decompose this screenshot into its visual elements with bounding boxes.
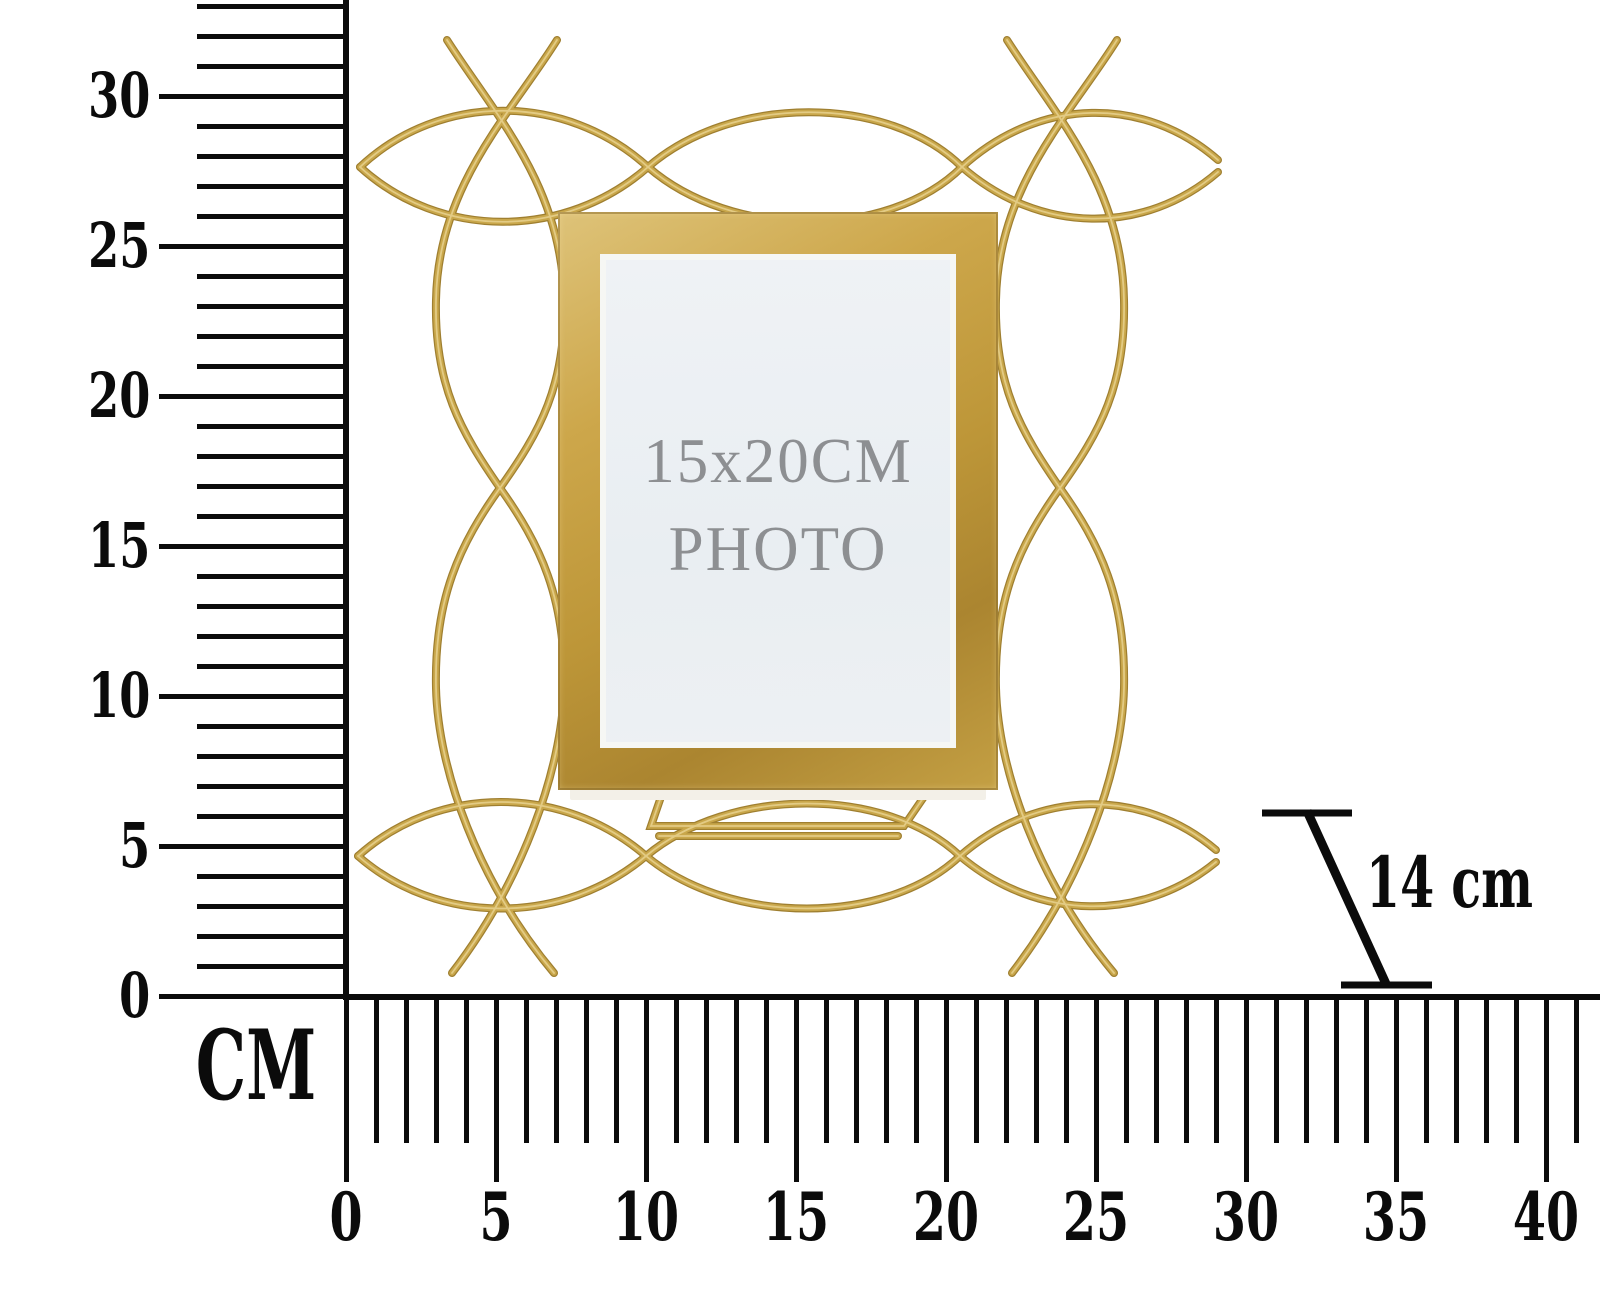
h-ruler-tick xyxy=(1124,995,1129,1143)
h-ruler-label: 25 xyxy=(1063,1184,1129,1250)
v-ruler-tick xyxy=(197,484,349,489)
v-ruler-tick xyxy=(197,424,349,429)
h-ruler-tick xyxy=(524,995,529,1143)
h-ruler-tick xyxy=(1484,995,1489,1143)
h-ruler-tick xyxy=(974,995,979,1143)
h-ruler-tick xyxy=(1364,995,1369,1143)
v-ruler-tick xyxy=(197,514,349,519)
placeholder-size-text: 15x20CM xyxy=(606,423,950,499)
ruler-unit-label: CM xyxy=(196,1018,317,1114)
h-ruler-tick xyxy=(854,995,859,1143)
h-ruler-label: 15 xyxy=(763,1184,829,1250)
v-ruler-label: 20 xyxy=(88,365,150,427)
h-ruler-tick xyxy=(494,995,499,1182)
h-ruler-tick xyxy=(1454,995,1459,1143)
v-ruler-tick xyxy=(197,454,349,459)
h-ruler-tick xyxy=(374,995,379,1143)
photo-placeholder: 15x20CM PHOTO xyxy=(600,254,956,748)
h-ruler-tick xyxy=(1064,995,1069,1143)
v-ruler-tick xyxy=(197,124,349,129)
h-ruler-tick xyxy=(584,995,589,1143)
h-ruler-tick xyxy=(884,995,889,1143)
h-ruler-tick xyxy=(1004,995,1009,1143)
h-ruler-tick xyxy=(614,995,619,1143)
h-ruler-tick xyxy=(1034,995,1039,1143)
h-ruler-tick xyxy=(1574,995,1579,1143)
v-ruler-tick xyxy=(197,754,349,759)
h-ruler-tick xyxy=(734,995,739,1143)
h-ruler-label: 5 xyxy=(479,1184,512,1250)
h-ruler-tick xyxy=(344,995,349,1182)
v-ruler-tick xyxy=(197,574,349,579)
v-ruler-tick xyxy=(197,724,349,729)
v-ruler-label: 0 xyxy=(119,965,150,1027)
v-ruler-tick xyxy=(197,184,349,189)
h-ruler-tick xyxy=(1544,995,1549,1182)
v-ruler-tick xyxy=(197,664,349,669)
h-ruler-tick xyxy=(1094,995,1099,1182)
h-ruler-label: 10 xyxy=(613,1184,679,1250)
v-ruler-tick xyxy=(197,814,349,819)
photo-frame: 15x20CM PHOTO xyxy=(558,212,998,790)
h-ruler-label: 35 xyxy=(1363,1184,1429,1250)
v-ruler-tick xyxy=(159,244,349,249)
h-ruler-tick xyxy=(944,995,949,1182)
h-ruler-tick xyxy=(794,995,799,1182)
h-ruler-tick xyxy=(704,995,709,1143)
v-ruler-tick xyxy=(197,634,349,639)
h-ruler-tick xyxy=(1514,995,1519,1143)
h-ruler-tick xyxy=(464,995,469,1143)
v-ruler-tick xyxy=(197,4,349,9)
h-ruler-tick xyxy=(914,995,919,1143)
v-ruler-label: 15 xyxy=(88,515,150,577)
v-ruler-tick xyxy=(159,394,349,399)
depth-measurement-label: 14 cm xyxy=(1366,848,1533,918)
v-ruler-tick xyxy=(197,304,349,309)
h-ruler-tick xyxy=(554,995,559,1143)
h-ruler-tick xyxy=(1304,995,1309,1143)
h-ruler-tick xyxy=(1394,995,1399,1182)
v-ruler-label: 5 xyxy=(119,815,150,877)
v-ruler-tick xyxy=(197,214,349,219)
h-ruler-tick xyxy=(1184,995,1189,1143)
h-ruler-tick xyxy=(674,995,679,1143)
v-ruler-tick xyxy=(197,274,349,279)
v-ruler-tick xyxy=(159,994,349,999)
v-ruler-tick xyxy=(159,94,349,99)
v-ruler-label: 30 xyxy=(88,65,150,127)
vertical-ruler-axis xyxy=(343,0,349,1000)
h-ruler-tick xyxy=(434,995,439,1143)
v-ruler-tick xyxy=(197,874,349,879)
v-ruler-label: 25 xyxy=(88,215,150,277)
v-ruler-tick xyxy=(197,934,349,939)
v-ruler-tick xyxy=(197,154,349,159)
v-ruler-tick xyxy=(197,334,349,339)
h-ruler-tick xyxy=(1214,995,1219,1143)
placeholder-photo-text: PHOTO xyxy=(606,511,950,587)
v-ruler-tick xyxy=(159,844,349,849)
v-ruler-tick xyxy=(197,964,349,969)
h-ruler-label: 40 xyxy=(1513,1184,1579,1250)
product-dimension-diagram: 15x20CM PHOTO 051015202530 0510152025303… xyxy=(0,0,1600,1293)
v-ruler-tick xyxy=(197,904,349,909)
h-ruler-tick xyxy=(1334,995,1339,1143)
h-ruler-tick xyxy=(1424,995,1429,1143)
h-ruler-label: 20 xyxy=(913,1184,979,1250)
h-ruler-tick xyxy=(764,995,769,1143)
v-ruler-tick xyxy=(197,64,349,69)
h-ruler-tick xyxy=(1244,995,1249,1182)
v-ruler-tick xyxy=(197,364,349,369)
h-ruler-tick xyxy=(644,995,649,1182)
h-ruler-tick xyxy=(1154,995,1159,1143)
v-ruler-tick xyxy=(159,544,349,549)
v-ruler-tick xyxy=(197,604,349,609)
h-ruler-label: 0 xyxy=(329,1184,362,1250)
h-ruler-tick xyxy=(404,995,409,1143)
v-ruler-tick xyxy=(197,784,349,789)
v-ruler-tick xyxy=(197,34,349,39)
h-ruler-tick xyxy=(824,995,829,1143)
h-ruler-tick xyxy=(1274,995,1279,1143)
h-ruler-label: 30 xyxy=(1213,1184,1279,1250)
v-ruler-label: 10 xyxy=(88,665,150,727)
v-ruler-tick xyxy=(159,694,349,699)
